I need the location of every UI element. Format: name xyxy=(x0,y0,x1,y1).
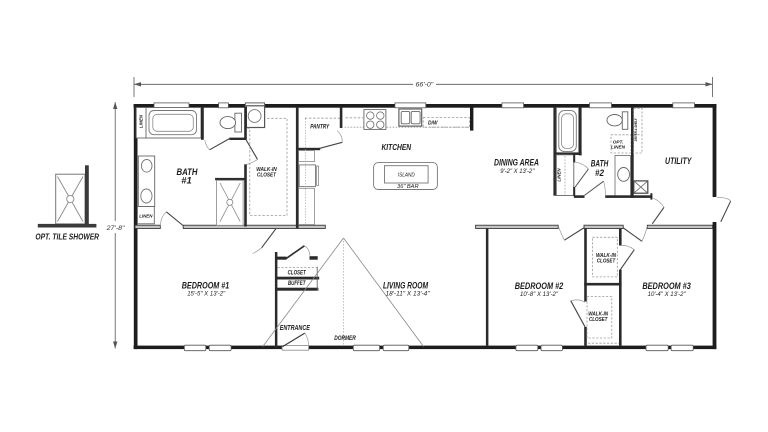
svg-text:DINING AREA: DINING AREA xyxy=(494,158,539,168)
svg-text:CLOSET: CLOSET xyxy=(257,173,277,179)
svg-text:DORMER: DORMER xyxy=(334,335,356,342)
svg-text:36" BAR: 36" BAR xyxy=(397,184,419,190)
svg-text:CLOSET: CLOSET xyxy=(288,270,307,277)
svg-text:ENTRANCE: ENTRANCE xyxy=(280,323,310,332)
svg-text:UTILITY: UTILITY xyxy=(665,156,692,166)
svg-text:CLOSET: CLOSET xyxy=(589,317,608,323)
svg-text:CLOSET: CLOSET xyxy=(597,259,616,265)
svg-text:KITCHEN: KITCHEN xyxy=(381,143,412,152)
svg-text:LINEN: LINEN xyxy=(557,168,562,182)
svg-text:BUFFET: BUFFET xyxy=(288,280,306,287)
svg-text:LINEN: LINEN xyxy=(139,213,153,218)
svg-text:#2: #2 xyxy=(595,168,605,178)
svg-text:66'-0": 66'-0" xyxy=(416,81,434,88)
svg-text:18'-11" X 13'-4": 18'-11" X 13'-4" xyxy=(386,291,431,298)
svg-text:27'-8": 27'-8" xyxy=(106,225,126,232)
svg-text:OPT. TILE SHOWER: OPT. TILE SHOWER xyxy=(35,233,99,242)
svg-text:PANTRY: PANTRY xyxy=(310,124,329,131)
svg-text:DRYER & SHELF: DRYER & SHELF xyxy=(634,117,638,141)
svg-text:BEDROOM #3: BEDROOM #3 xyxy=(642,281,691,291)
svg-text:BEDROOM #2: BEDROOM #2 xyxy=(515,281,564,291)
svg-text:BEDROOM #1: BEDROOM #1 xyxy=(182,280,230,290)
svg-text:LIVING ROOM: LIVING ROOM xyxy=(383,280,428,290)
svg-text:9'-2" X 13'-2": 9'-2" X 13'-2" xyxy=(500,168,535,175)
svg-text:LINEN: LINEN xyxy=(139,114,144,128)
svg-text:ISLAND: ISLAND xyxy=(398,172,415,178)
svg-text:10'-4" X 13'-2": 10'-4" X 13'-2" xyxy=(648,291,687,298)
svg-text:#1: #1 xyxy=(181,175,192,185)
svg-text:LINEN: LINEN xyxy=(611,144,626,149)
svg-text:D/W: D/W xyxy=(428,120,438,126)
svg-text:10'-8" X 13'-2": 10'-8" X 13'-2" xyxy=(520,291,559,298)
svg-text:15'-5" X 13'-2": 15'-5" X 13'-2" xyxy=(187,291,226,298)
